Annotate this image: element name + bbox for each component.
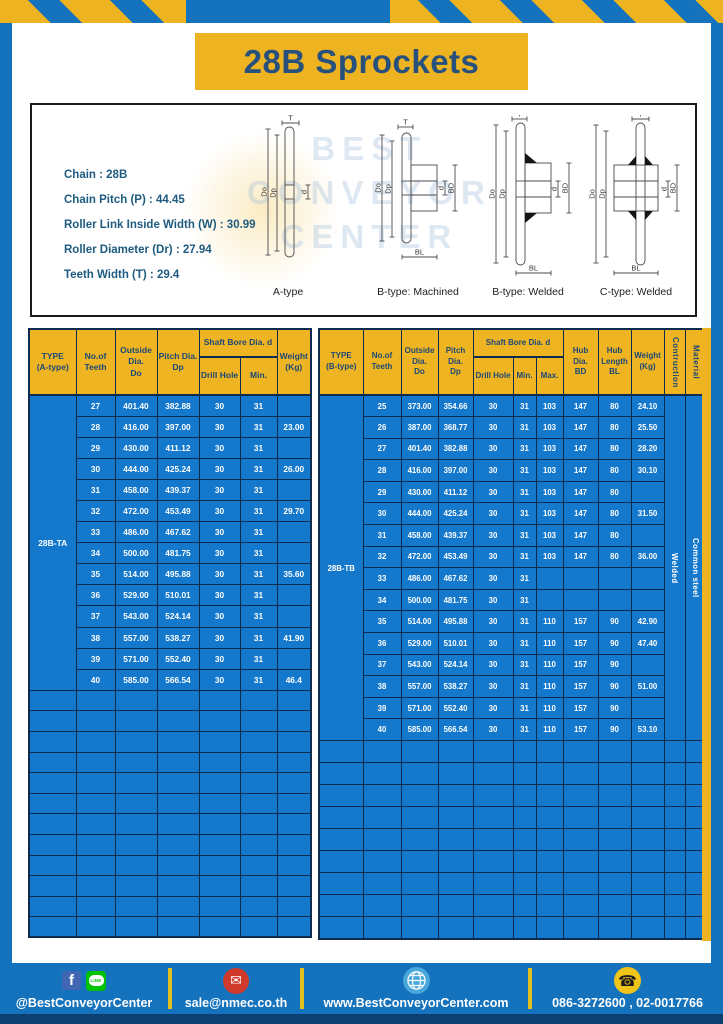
empty-cell (76, 834, 115, 855)
header-shaft_bore: Shaft Bore Dia. d (473, 329, 563, 357)
data-cell: 31 (513, 697, 536, 719)
empty-cell (115, 773, 157, 794)
empty-cell (115, 855, 157, 876)
data-cell (277, 437, 311, 458)
data-cell: 529.00 (115, 585, 157, 606)
empty-table-row (29, 834, 311, 855)
data-cell: 31 (240, 416, 277, 437)
data-cell: 585.00 (115, 669, 157, 690)
empty-cell (438, 895, 473, 917)
data-cell: 31 (513, 438, 536, 460)
svg-text:Do: Do (260, 187, 269, 197)
empty-cell (536, 763, 563, 785)
table-row: 28B-TA27401.40382.883031 (29, 395, 311, 416)
data-cell: 31 (240, 458, 277, 479)
data-cell: 585.00 (401, 719, 438, 741)
data-cell: 41.90 (277, 627, 311, 648)
empty-cell (438, 829, 473, 851)
facebook-icon: f (62, 971, 81, 990)
table-row: 37543.00524.14303111015790 (319, 654, 706, 676)
table-row: 39571.00552.40303111015790 (319, 697, 706, 719)
empty-cell (240, 690, 277, 711)
data-cell: 80 (598, 395, 631, 417)
empty-table-row (319, 917, 706, 939)
table-row: 27401.40382.8830311031478028.20 (319, 438, 706, 460)
diagram-label: A-type (232, 286, 344, 298)
empty-cell (115, 793, 157, 814)
svg-text:BL: BL (631, 264, 640, 273)
spec-chain: Chain : 28B (64, 163, 256, 188)
data-cell: 30.10 (631, 460, 664, 482)
data-cell: 30 (473, 633, 513, 655)
empty-cell (363, 785, 401, 807)
empty-cell (240, 917, 277, 938)
data-cell: 30 (199, 479, 240, 500)
data-cell: 31 (513, 481, 536, 503)
data-cell: 103 (536, 481, 563, 503)
empty-cell (664, 785, 685, 807)
data-cell: 30 (199, 627, 240, 648)
header-type: TYPE (A-type) (29, 329, 76, 395)
empty-cell (664, 895, 685, 917)
data-cell: 571.00 (115, 648, 157, 669)
website-url: www.BestConveyorCenter.com (323, 996, 508, 1010)
empty-cell (76, 876, 115, 897)
header-outside: Outside Dia. Do (401, 329, 438, 395)
data-cell: 147 (563, 546, 598, 568)
data-cell: 157 (563, 719, 598, 741)
data-cell: 36.00 (631, 546, 664, 568)
empty-cell (277, 752, 311, 773)
empty-cell (277, 896, 311, 917)
data-cell: 397.00 (438, 460, 473, 482)
empty-cell (29, 896, 76, 917)
table-row: 36529.00510.0130311101579047.40 (319, 633, 706, 655)
empty-cell (199, 690, 240, 711)
diagram-c-type-welded: DoDpdBDBLT C-type: Welded (580, 115, 692, 298)
data-cell: 472.00 (401, 546, 438, 568)
empty-cell (563, 741, 598, 763)
data-cell: 36 (363, 633, 401, 655)
data-cell: 401.40 (401, 438, 438, 460)
empty-cell (240, 834, 277, 855)
empty-table-row (29, 773, 311, 794)
phone-numbers: 086-3272600 , 02-0017766 (552, 996, 703, 1010)
data-cell: 31 (513, 395, 536, 417)
empty-cell (157, 834, 199, 855)
data-cell: 538.27 (157, 627, 199, 648)
data-cell: 90 (598, 676, 631, 698)
empty-cell (664, 763, 685, 785)
table-row: 35514.00495.8830311101579042.90 (319, 611, 706, 633)
empty-table-row (29, 793, 311, 814)
a-type-table: TYPE (A-type)No.of TeethOutside Dia. DoP… (28, 328, 312, 938)
header-drill: Drill Hole (199, 357, 240, 395)
table-row: 31458.00439.37303110314780 (319, 525, 706, 547)
data-cell: 38 (363, 676, 401, 698)
empty-cell (563, 829, 598, 851)
empty-cell (664, 807, 685, 829)
data-cell: 30 (473, 395, 513, 417)
empty-cell (473, 851, 513, 873)
data-cell: 30 (473, 460, 513, 482)
empty-cell (157, 793, 199, 814)
empty-cell (473, 785, 513, 807)
empty-cell (240, 793, 277, 814)
empty-cell (319, 763, 363, 785)
table-row: 26387.00368.7730311031478025.50 (319, 417, 706, 439)
data-cell: 354.66 (438, 395, 473, 417)
empty-cell (664, 917, 685, 939)
empty-cell (319, 895, 363, 917)
data-cell: 31 (513, 503, 536, 525)
svg-text:T: T (638, 115, 643, 119)
data-cell (631, 525, 664, 547)
data-cell: 33 (76, 522, 115, 543)
spec-roller-width: Roller Link Inside Width (W) : 30.99 (64, 213, 256, 238)
data-cell: 30 (473, 503, 513, 525)
data-cell: 24.10 (631, 395, 664, 417)
line-bubble-text: LINE (89, 975, 104, 986)
data-cell: 40 (363, 719, 401, 741)
empty-cell (438, 741, 473, 763)
sprocket-drawing-c-welded: DoDpdBDBLT (580, 115, 692, 286)
empty-cell (363, 917, 401, 939)
right-accent-strip (702, 328, 711, 941)
data-cell: 31 (240, 522, 277, 543)
data-cell: 30 (473, 719, 513, 741)
data-cell: 30 (473, 676, 513, 698)
data-cell: 31 (240, 500, 277, 521)
svg-text:Do: Do (588, 189, 597, 199)
empty-cell (319, 873, 363, 895)
data-cell: 30 (199, 564, 240, 585)
data-cell (631, 654, 664, 676)
data-cell: 157 (563, 633, 598, 655)
data-cell: 30 (199, 522, 240, 543)
empty-cell (115, 834, 157, 855)
data-cell: 31 (513, 633, 536, 655)
empty-cell (513, 807, 536, 829)
empty-cell (115, 732, 157, 753)
data-cell: 103 (536, 525, 563, 547)
data-cell: 147 (563, 525, 598, 547)
empty-cell (664, 829, 685, 851)
data-cell: 481.75 (157, 543, 199, 564)
svg-text:T: T (403, 118, 408, 127)
data-cell: 31 (240, 585, 277, 606)
data-cell: 80 (598, 460, 631, 482)
svg-text:d: d (660, 187, 669, 191)
empty-cell (664, 851, 685, 873)
data-cell: 510.01 (157, 585, 199, 606)
svg-text:BL: BL (529, 264, 538, 273)
empty-cell (76, 896, 115, 917)
data-cell: 90 (598, 611, 631, 633)
data-cell (631, 697, 664, 719)
empty-cell (115, 690, 157, 711)
email-icon: ✉ (223, 968, 249, 994)
data-cell (631, 481, 664, 503)
data-cell: 514.00 (115, 564, 157, 585)
diagram-label: B-type: Welded (472, 286, 584, 298)
empty-table-row (319, 741, 706, 763)
empty-cell (631, 785, 664, 807)
empty-table-row (319, 895, 706, 917)
data-cell: 514.00 (401, 611, 438, 633)
data-cell: 524.14 (157, 606, 199, 627)
svg-text:Dp: Dp (598, 189, 607, 199)
empty-cell (157, 752, 199, 773)
data-cell: 30 (199, 585, 240, 606)
data-cell: 80 (598, 546, 631, 568)
empty-cell (631, 807, 664, 829)
data-cell: 472.00 (115, 500, 157, 521)
empty-cell (277, 834, 311, 855)
data-cell: 80 (598, 417, 631, 439)
empty-cell (513, 741, 536, 763)
data-cell: 31 (240, 648, 277, 669)
sprocket-drawing-b-welded: DoDpdBDBLT (472, 115, 584, 286)
empty-cell (240, 855, 277, 876)
data-cell: 571.00 (401, 697, 438, 719)
header-teeth: No.of Teeth (76, 329, 115, 395)
chain-specs: Chain : 28B Chain Pitch (P) : 44.45 Roll… (64, 163, 256, 288)
data-cell: 35.60 (277, 564, 311, 585)
svg-text:Dp: Dp (498, 189, 507, 199)
empty-cell (199, 773, 240, 794)
phone-icon: ☎ (614, 967, 641, 994)
data-cell: 32 (76, 500, 115, 521)
data-cell: 30 (363, 503, 401, 525)
empty-cell (319, 785, 363, 807)
data-cell: 31 (363, 525, 401, 547)
data-cell: 26 (363, 417, 401, 439)
empty-cell (401, 851, 438, 873)
data-cell: 453.49 (157, 500, 199, 521)
empty-table-row (29, 855, 311, 876)
data-cell: 368.77 (438, 417, 473, 439)
data-cell: 80 (598, 481, 631, 503)
bottom-edge-strip (0, 1014, 723, 1024)
data-cell: 30 (199, 606, 240, 627)
empty-cell (29, 855, 76, 876)
empty-cell (513, 785, 536, 807)
data-cell: 53.10 (631, 719, 664, 741)
data-cell (536, 568, 563, 590)
empty-table-row (319, 873, 706, 895)
data-cell: 529.00 (401, 633, 438, 655)
empty-cell (199, 917, 240, 938)
data-cell: 30 (199, 543, 240, 564)
data-cell: 31 (513, 417, 536, 439)
svg-text:BD: BD (447, 182, 456, 193)
empty-table-row (319, 785, 706, 807)
data-cell: 439.37 (157, 479, 199, 500)
data-cell: 486.00 (115, 522, 157, 543)
svg-text:d: d (437, 186, 446, 190)
diagram-a-type: DoDpdT A-type (232, 115, 344, 298)
empty-cell (199, 752, 240, 773)
data-cell: 31 (240, 543, 277, 564)
data-cell: 157 (563, 676, 598, 698)
svg-text:Do: Do (374, 183, 383, 193)
table-row: 28416.00397.0030311031478030.10 (319, 460, 706, 482)
data-cell: 35 (363, 611, 401, 633)
data-cell: 430.00 (115, 437, 157, 458)
empty-cell (157, 896, 199, 917)
empty-cell (115, 814, 157, 835)
empty-cell (631, 873, 664, 895)
page-title-banner: 28B Sprockets (195, 33, 528, 90)
data-cell: 51.00 (631, 676, 664, 698)
type-label-cell: 28B-TA (29, 395, 76, 690)
data-cell (631, 589, 664, 611)
data-cell: 110 (536, 676, 563, 698)
empty-cell (536, 851, 563, 873)
header-weight: Weight (Kg) (631, 329, 664, 395)
empty-cell (363, 895, 401, 917)
empty-table-row (29, 876, 311, 897)
data-cell: 29 (76, 437, 115, 458)
diagram-b-type-machined: DoDpdBDBLT B-type: Machined (362, 115, 474, 298)
data-cell: 401.40 (115, 395, 157, 416)
empty-cell (513, 895, 536, 917)
header-pitch: Pitch Dia. Dp (157, 329, 199, 395)
data-cell: 397.00 (157, 416, 199, 437)
empty-cell (438, 873, 473, 895)
data-cell: 90 (598, 719, 631, 741)
data-cell: 495.88 (438, 611, 473, 633)
data-cell: 46.4 (277, 669, 311, 690)
construction-value-cell: Welded (664, 395, 685, 741)
empty-cell (664, 741, 685, 763)
empty-cell (277, 855, 311, 876)
data-cell: 25 (363, 395, 401, 417)
empty-cell (563, 763, 598, 785)
empty-cell (199, 855, 240, 876)
data-cell: 382.88 (157, 395, 199, 416)
empty-cell (363, 807, 401, 829)
empty-cell (563, 807, 598, 829)
data-cell (277, 395, 311, 416)
data-cell: 439.37 (438, 525, 473, 547)
data-cell: 29.70 (277, 500, 311, 521)
data-cell: 103 (536, 417, 563, 439)
data-cell (277, 522, 311, 543)
empty-cell (401, 807, 438, 829)
footer-website-group: www.BestConveyorCenter.com (304, 963, 528, 1014)
data-cell: 29 (363, 481, 401, 503)
data-cell: 566.54 (438, 719, 473, 741)
empty-table-row (319, 851, 706, 873)
empty-table-row (319, 763, 706, 785)
data-cell (563, 568, 598, 590)
data-cell: 37 (76, 606, 115, 627)
data-cell: 30 (473, 438, 513, 460)
empty-cell (199, 876, 240, 897)
data-cell: 28.20 (631, 438, 664, 460)
data-cell: 30 (473, 568, 513, 590)
empty-cell (401, 763, 438, 785)
data-cell: 30 (473, 525, 513, 547)
empty-cell (563, 917, 598, 939)
empty-cell (29, 711, 76, 732)
data-cell: 34 (76, 543, 115, 564)
data-cell: 103 (536, 546, 563, 568)
data-cell: 36 (76, 585, 115, 606)
empty-table-row (29, 814, 311, 835)
data-cell: 157 (563, 611, 598, 633)
data-cell: 30 (473, 697, 513, 719)
svg-text:BL: BL (415, 248, 424, 257)
footer-phone-group: ☎ 086-3272600 , 02-0017766 (532, 963, 723, 1014)
header-construction: Contruction (664, 329, 685, 395)
header-max: Max. (536, 357, 563, 395)
data-cell: 31 (513, 546, 536, 568)
data-cell: 90 (598, 697, 631, 719)
data-cell: 387.00 (401, 417, 438, 439)
empty-cell (199, 711, 240, 732)
empty-cell (563, 873, 598, 895)
empty-cell (401, 917, 438, 939)
empty-cell (363, 873, 401, 895)
svg-text:T: T (517, 115, 522, 119)
data-cell: 495.88 (157, 564, 199, 585)
empty-cell (598, 741, 631, 763)
empty-cell (157, 814, 199, 835)
data-cell: 31 (240, 606, 277, 627)
header-hub_len: Hub Length BL (598, 329, 631, 395)
data-cell: 411.12 (438, 481, 473, 503)
empty-cell (631, 851, 664, 873)
data-cell: 425.24 (438, 503, 473, 525)
svg-text:BD: BD (561, 182, 570, 193)
empty-cell (277, 793, 311, 814)
header-type: TYPE (B-type) (319, 329, 363, 395)
empty-cell (76, 917, 115, 938)
empty-cell (29, 814, 76, 835)
table-row: 32472.00453.4930311031478036.00 (319, 546, 706, 568)
empty-cell (319, 807, 363, 829)
data-cell: 30 (473, 589, 513, 611)
b-type-table: TYPE (B-type)No.of TeethOutside Dia. DoP… (318, 328, 707, 940)
data-cell: 147 (563, 481, 598, 503)
header-min: Min. (513, 357, 536, 395)
svg-text:BD: BD (669, 182, 678, 193)
empty-cell (438, 917, 473, 939)
empty-cell (277, 773, 311, 794)
empty-cell (438, 763, 473, 785)
empty-cell (277, 814, 311, 835)
data-cell (598, 568, 631, 590)
empty-cell (29, 876, 76, 897)
empty-cell (401, 829, 438, 851)
data-cell: 32 (363, 546, 401, 568)
empty-cell (319, 851, 363, 873)
data-cell (277, 648, 311, 669)
empty-cell (631, 741, 664, 763)
sprocket-drawing-a: DoDpdT (232, 115, 344, 286)
empty-cell (277, 711, 311, 732)
spec-diagram-panel: BEST CONVEYOR CENTER Chain : 28B Chain P… (30, 103, 697, 317)
data-cell: 557.00 (115, 627, 157, 648)
empty-cell (76, 793, 115, 814)
empty-cell (563, 895, 598, 917)
data-cell: 28 (363, 460, 401, 482)
data-cell (536, 589, 563, 611)
data-cell: 26.00 (277, 458, 311, 479)
